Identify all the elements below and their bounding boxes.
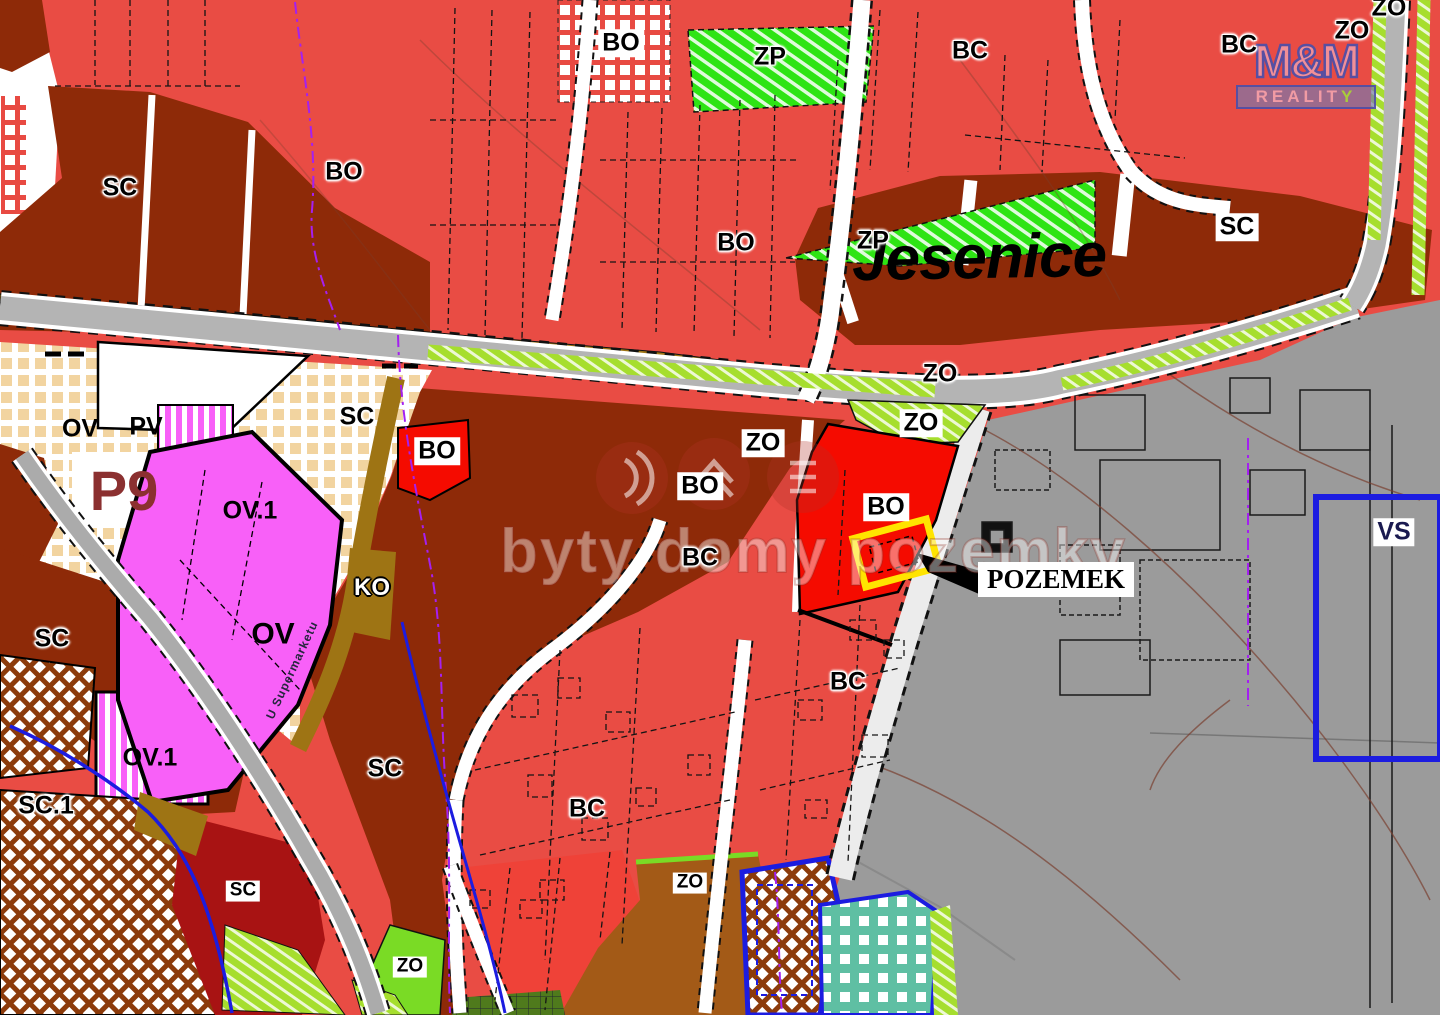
zone-label-zp: ZP [857,227,889,255]
label-layer: Jesenice byty domy pozemky U Supermarket… [0,0,1440,1015]
zone-label-sc: SC [340,403,375,431]
zone-label-ov: OV [62,415,98,443]
zone-label-ov-1: OV.1 [223,497,278,525]
zone-label-pv: PV [129,413,162,441]
zone-label-bo: BO [414,437,460,465]
zone-label-bc: BC [569,795,605,823]
zone-label-sc-1: SC.1 [18,792,74,820]
zone-label-zo: ZO [1335,17,1370,45]
zone-label-ov-1: OV.1 [123,744,178,772]
pozemek-callout-label: POZEMEK [978,562,1134,597]
zone-label-zo: ZO [1372,0,1407,22]
zone-label-bo: BO [677,472,723,500]
zone-label-sc: SC [103,174,138,202]
zoning-map-image: Jesenice byty domy pozemky U Supermarket… [0,0,1440,1015]
zone-label-ko: KO [354,575,390,601]
logo-reality-text: REALITY [1236,85,1376,109]
zone-label-bo: BO [325,158,363,186]
zone-label-zo: ZO [393,957,427,978]
logo-accent-letter: Y [1341,87,1356,106]
zone-label-zo: ZO [673,873,707,894]
zone-label-zo: ZO [742,429,785,457]
zone-label-sc: SC [226,881,260,902]
zone-label-sc: SC [368,755,403,783]
zone-label-bo: BO [863,493,909,521]
zone-label-bc: BC [952,37,988,65]
zone-label-bo: BO [717,229,755,257]
zone-label-bc: BC [682,544,718,572]
zone-label-bo: BO [598,29,644,57]
zone-label-bc: BC [830,668,866,696]
zone-label-bc: BC [1221,31,1257,59]
zone-label-sc: SC [35,625,70,653]
zone-label-zo: ZO [923,360,958,388]
place-name: Jesenice [851,220,1106,295]
zone-label-ov: OV [251,618,294,651]
zone-label-zo: ZO [900,409,943,437]
zone-label-zp: ZP [754,43,786,71]
zone-label-vs: VS [1373,518,1414,546]
zone-label-sc: SC [1216,213,1259,241]
zone-label-p9: P9 [90,460,159,522]
